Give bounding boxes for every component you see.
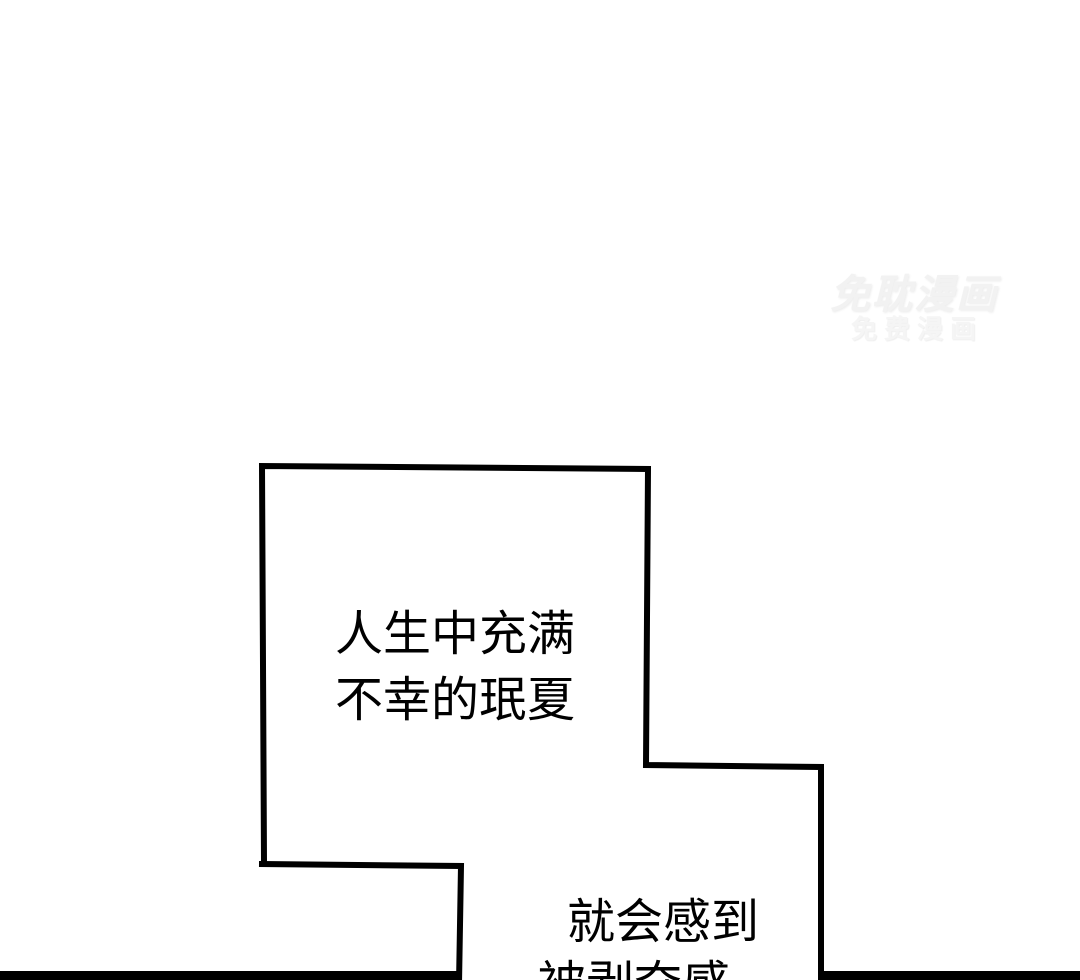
speech-text-panel1: 人生中充满 不幸的珉夏 <box>262 602 648 734</box>
panel1-step-outline <box>262 864 461 980</box>
speech-text-panel2-line2: 被剥夺感 <box>538 961 730 980</box>
panel2-top-border-right <box>819 971 1080 980</box>
comic-page: 免耽漫画 免费漫画 人生中充满 不幸的珉夏 就会感到 被剥夺感 <box>0 0 1080 980</box>
panel-borders <box>0 0 1080 980</box>
speech-text-panel2-line1: 就会感到 <box>567 899 759 947</box>
speech-line: 不幸的珉夏 <box>262 668 648 734</box>
panel2-top-border-left <box>0 971 462 980</box>
speech-line: 人生中充满 <box>262 602 648 668</box>
